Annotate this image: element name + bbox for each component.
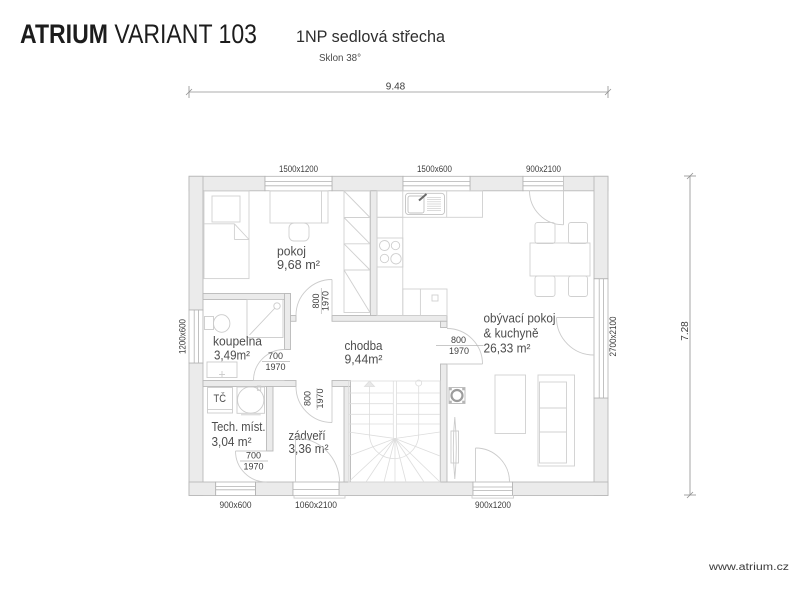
svg-text:koupelna: koupelna — [213, 334, 263, 349]
svg-text:7.28: 7.28 — [680, 321, 691, 341]
svg-text:900x600: 900x600 — [220, 500, 252, 510]
svg-text:1970: 1970 — [315, 388, 325, 408]
svg-text:800: 800 — [451, 335, 466, 345]
svg-text:800: 800 — [311, 293, 321, 308]
svg-text:1970: 1970 — [321, 291, 331, 311]
svg-text:ATRIUM VARIANT 103: ATRIUM VARIANT 103 — [20, 19, 257, 49]
svg-text:26,33 m²: 26,33 m² — [484, 341, 532, 356]
svg-text:Sklon 38°: Sklon 38° — [319, 52, 361, 64]
svg-text:3,04 m²: 3,04 m² — [212, 434, 253, 449]
svg-text:9,44m²: 9,44m² — [345, 352, 384, 367]
svg-text:9,68 m²: 9,68 m² — [277, 257, 321, 272]
svg-text:900x2100: 900x2100 — [526, 164, 561, 174]
svg-text:900x1200: 900x1200 — [475, 500, 511, 510]
svg-text:1200x600: 1200x600 — [178, 319, 188, 354]
svg-text:800: 800 — [303, 391, 313, 406]
svg-text:1970: 1970 — [243, 462, 263, 472]
svg-text:3,49m²: 3,49m² — [214, 348, 251, 363]
svg-text:& kuchyně: & kuchyně — [484, 326, 539, 341]
svg-text:Tech. míst.: Tech. míst. — [212, 419, 266, 434]
svg-text:1NP sedlová střecha: 1NP sedlová střecha — [296, 27, 446, 46]
svg-text:1970: 1970 — [449, 346, 469, 356]
svg-text:9.48: 9.48 — [386, 82, 406, 93]
svg-text:3,36 m²: 3,36 m² — [289, 441, 330, 456]
svg-text:2700x2100: 2700x2100 — [608, 317, 618, 357]
svg-text:www.atrium.cz: www.atrium.cz — [708, 562, 789, 573]
svg-text:TČ: TČ — [214, 392, 227, 405]
svg-text:obývací pokoj: obývací pokoj — [484, 311, 556, 326]
svg-text:700: 700 — [268, 351, 283, 361]
svg-text:1500x1200: 1500x1200 — [279, 164, 318, 174]
svg-text:700: 700 — [246, 451, 261, 461]
svg-text:1060x2100: 1060x2100 — [295, 500, 337, 510]
svg-text:1500x600: 1500x600 — [417, 164, 452, 174]
svg-text:1970: 1970 — [265, 362, 285, 372]
